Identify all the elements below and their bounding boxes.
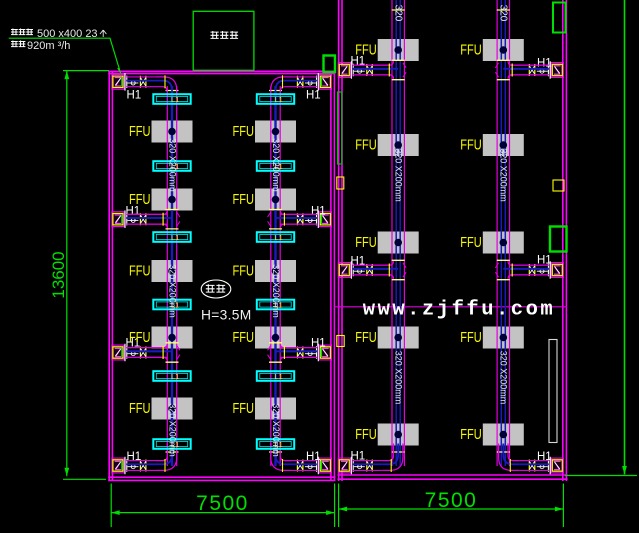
svg-text:320 X200mm: 320 X200mm xyxy=(167,403,177,457)
svg-text:320 X200mm: 320 X200mm xyxy=(271,138,281,192)
svg-text:L1: L1 xyxy=(275,233,283,242)
svg-text:7500: 7500 xyxy=(196,492,249,515)
svg-text:H1: H1 xyxy=(306,90,321,102)
svg-text:FFU: FFU xyxy=(233,192,255,208)
svg-text:13600: 13600 xyxy=(49,251,68,298)
svg-text:L1: L1 xyxy=(275,372,283,381)
svg-text:320 X200mm: 320 X200mm xyxy=(499,148,509,202)
svg-text:320 X200mm: 320 X200mm xyxy=(167,138,177,192)
svg-text:FFU: FFU xyxy=(129,401,151,417)
svg-text:H1: H1 xyxy=(306,451,321,463)
svg-text:FFU: FFU xyxy=(129,192,151,208)
svg-text:FFU: FFU xyxy=(355,330,377,346)
svg-text:H1: H1 xyxy=(311,206,326,218)
svg-text:FFU: FFU xyxy=(355,235,377,251)
svg-text:320 X200mm: 320 X200mm xyxy=(394,148,404,202)
svg-text:FFU: FFU xyxy=(460,43,482,59)
svg-text:H1: H1 xyxy=(127,451,142,463)
svg-text:320 X200mm: 320 X200mm xyxy=(167,264,177,318)
svg-text:320 X200mm: 320 X200mm xyxy=(394,351,404,405)
svg-text:FFU: FFU xyxy=(460,427,482,443)
svg-text:320 X200mm: 320 X200mm xyxy=(271,403,281,457)
svg-text:7500: 7500 xyxy=(425,489,478,512)
svg-text:FFU: FFU xyxy=(355,43,377,59)
svg-text:FFU: FFU xyxy=(233,124,255,140)
svg-text:H1: H1 xyxy=(537,58,552,70)
svg-text:920m ³/h: 920m ³/h xyxy=(27,40,70,52)
svg-text:L1: L1 xyxy=(275,95,283,104)
svg-text:H1: H1 xyxy=(537,451,552,463)
svg-text:FFU: FFU xyxy=(233,330,255,346)
svg-text:320 X200mm: 320 X200mm xyxy=(271,264,281,318)
svg-text:L1: L1 xyxy=(171,372,179,381)
svg-text:FFU: FFU xyxy=(460,138,482,154)
svg-text:FFU: FFU xyxy=(129,124,151,140)
svg-text:FFU: FFU xyxy=(355,138,377,154)
svg-text:www.zjffu.com: www.zjffu.com xyxy=(363,299,555,322)
svg-text:L1: L1 xyxy=(171,95,179,104)
svg-text:H1: H1 xyxy=(127,90,142,102)
svg-text:L1: L1 xyxy=(171,233,179,242)
svg-text:H=3.5M: H=3.5M xyxy=(201,308,252,323)
svg-text:FFU: FFU xyxy=(129,330,151,346)
svg-text:FFU: FFU xyxy=(233,264,255,280)
svg-text:FFU: FFU xyxy=(355,427,377,443)
svg-text:320: 320 xyxy=(393,5,404,22)
svg-text:FFU: FFU xyxy=(460,235,482,251)
svg-text:320: 320 xyxy=(498,5,509,22)
svg-text:FFU: FFU xyxy=(233,401,255,417)
svg-text:FFU: FFU xyxy=(129,264,151,280)
svg-text:FFU: FFU xyxy=(460,330,482,346)
svg-text:320 X200mm: 320 X200mm xyxy=(499,351,509,405)
